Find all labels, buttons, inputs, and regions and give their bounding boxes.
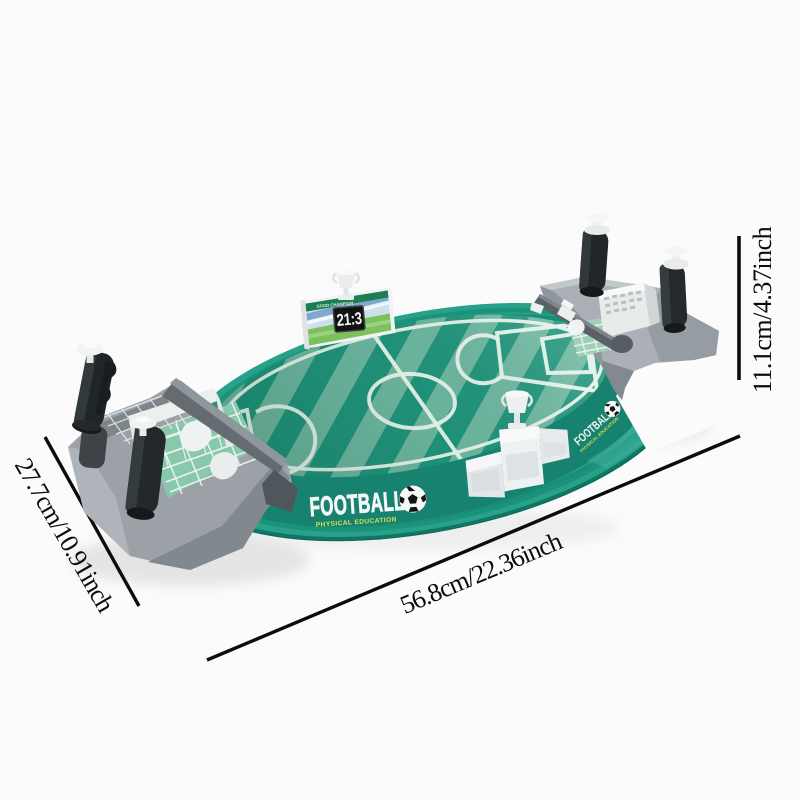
svg-text:11.1cm/4.37inch: 11.1cm/4.37inch (748, 226, 777, 393)
svg-text:21:3: 21:3 (336, 309, 363, 330)
